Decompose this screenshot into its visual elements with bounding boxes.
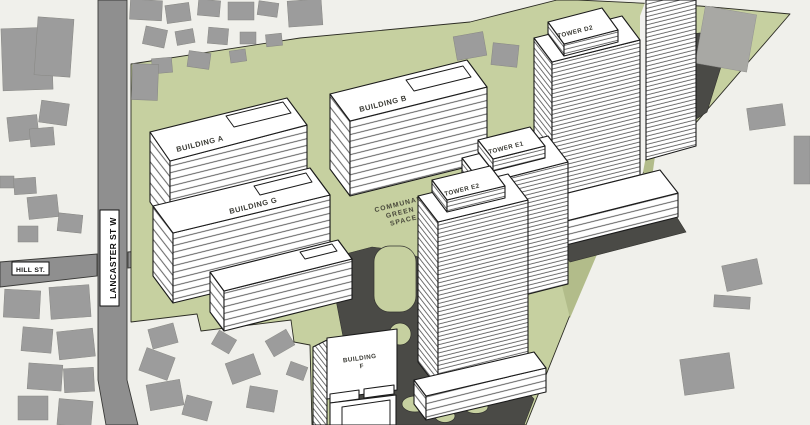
context-house: [453, 32, 487, 61]
context-house: [695, 6, 756, 72]
context-house: [287, 0, 323, 27]
building-f: [313, 329, 397, 425]
lancaster-label: LANCASTER ST W: [108, 217, 118, 299]
context-house: [39, 100, 70, 126]
context-house: [175, 29, 195, 46]
context-house: [680, 353, 735, 396]
context-house: [3, 289, 40, 319]
hill-label: HILL ST.: [16, 267, 45, 274]
context-house: [57, 399, 93, 425]
context-house: [34, 17, 74, 77]
context-house: [165, 2, 191, 23]
context-house: [49, 285, 91, 320]
tower-e2-side-face: [418, 196, 438, 388]
context-house: [747, 104, 786, 131]
tower-d1-front-face: [646, 0, 696, 160]
context-house: [27, 363, 63, 391]
landscape-island: [374, 246, 416, 312]
context-house: [129, 0, 162, 21]
tower-e2: [414, 166, 546, 420]
context-house: [240, 32, 256, 44]
context-house: [0, 176, 14, 188]
context-house: [197, 0, 220, 17]
context-house: [29, 127, 54, 147]
context-house: [491, 43, 519, 68]
context-house: [257, 1, 279, 18]
context-house: [18, 396, 48, 420]
context-house: [13, 177, 36, 194]
context-house: [207, 27, 228, 45]
context-house: [18, 226, 38, 242]
context-house: [57, 328, 96, 360]
context-house: [63, 367, 94, 393]
context-house: [246, 386, 277, 413]
site-plan-rendering: BUILDING A BUILDING B BUILDING G TOWER D…: [0, 0, 810, 425]
context-house: [794, 136, 810, 184]
context-house: [265, 33, 282, 47]
context-house: [714, 295, 751, 309]
context-house: [228, 2, 254, 20]
context-house: [27, 194, 59, 219]
context-house: [146, 379, 184, 411]
tower-d-gap-face: [640, 0, 646, 188]
context-house: [21, 327, 53, 354]
building-f-side-face: [313, 340, 327, 425]
context-house: [187, 51, 211, 70]
site-plan-canvas: BUILDING A BUILDING B BUILDING G TOWER D…: [0, 0, 810, 425]
context-house: [229, 49, 247, 63]
context-house: [131, 64, 158, 101]
context-house: [57, 213, 83, 233]
